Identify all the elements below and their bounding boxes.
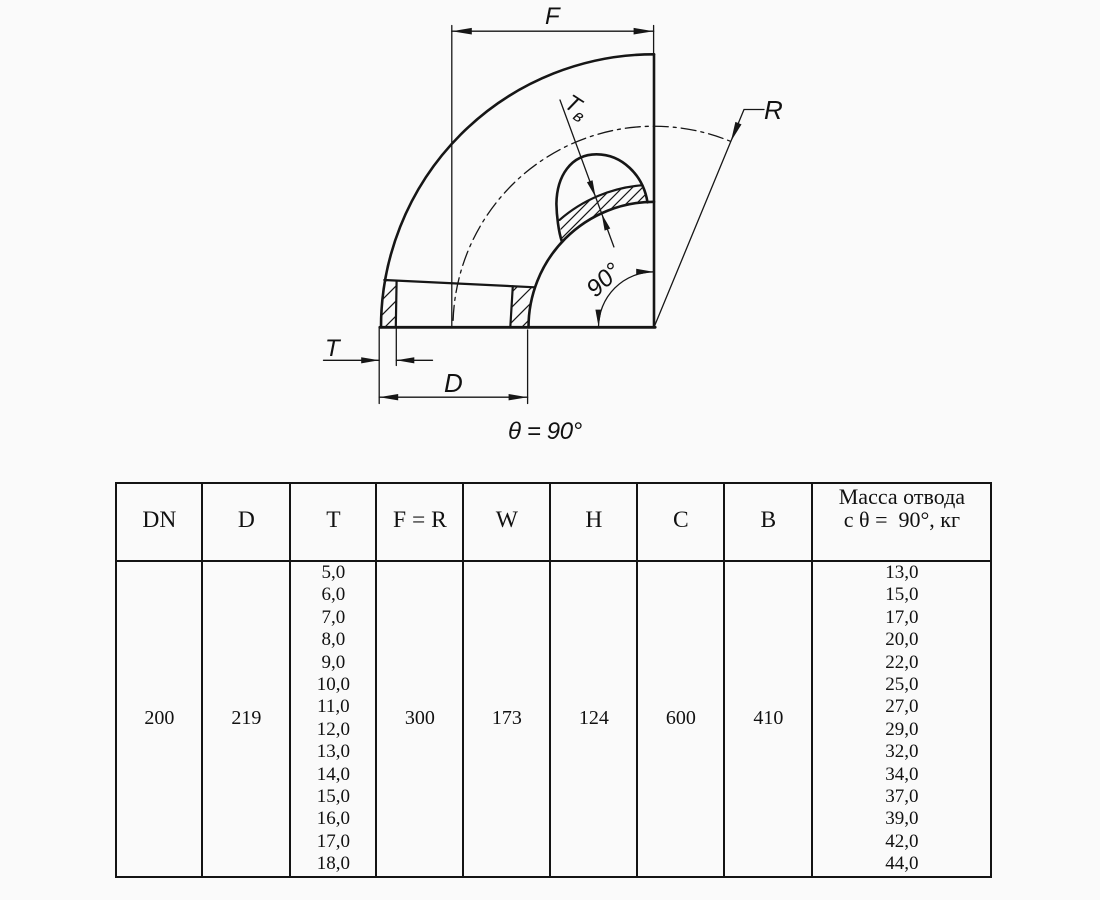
svg-text:Tв: Tв xyxy=(558,89,594,127)
svg-text:F: F xyxy=(545,3,561,30)
svg-text:T: T xyxy=(325,335,342,362)
svg-text:90°: 90° xyxy=(581,257,627,302)
svg-text:θ = 90°: θ = 90° xyxy=(508,418,583,445)
svg-text:R: R xyxy=(764,95,783,125)
svg-text:D: D xyxy=(444,368,463,398)
